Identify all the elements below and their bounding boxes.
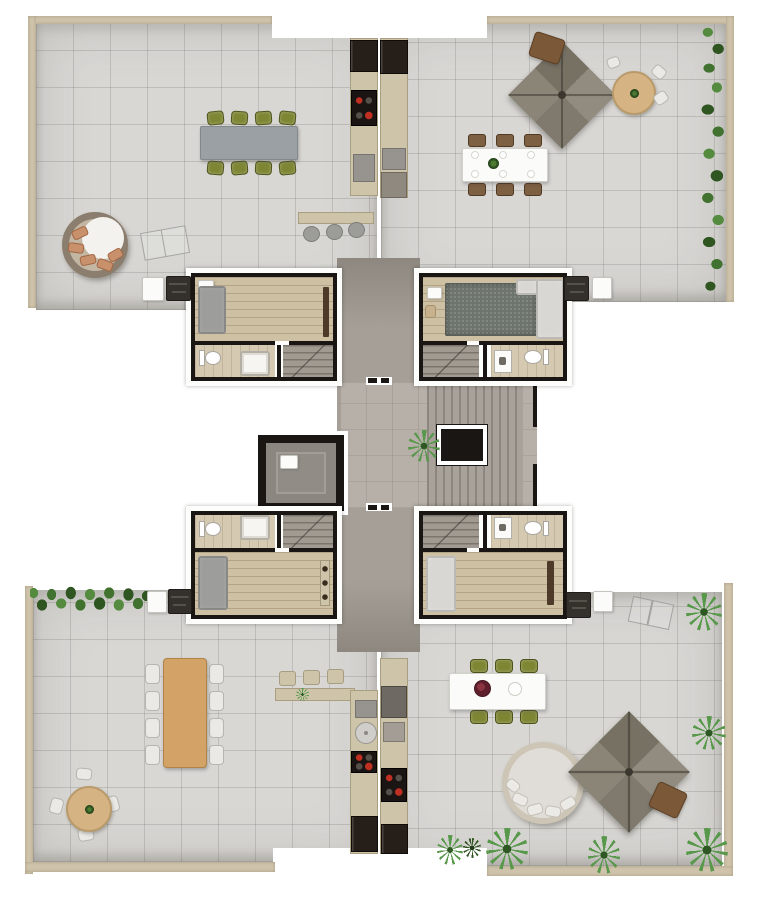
dining-chair bbox=[230, 160, 248, 175]
palm-plant bbox=[686, 593, 722, 631]
parapet-wall bbox=[25, 862, 275, 872]
dining-chair bbox=[206, 160, 224, 175]
dining-chair bbox=[145, 718, 160, 738]
parasol-pole bbox=[625, 768, 633, 776]
palm-plant bbox=[686, 828, 728, 872]
bbq-grill bbox=[168, 589, 192, 614]
room-walls bbox=[419, 511, 567, 619]
hedge bbox=[30, 584, 150, 614]
dining-table bbox=[200, 126, 298, 160]
dining-chair bbox=[496, 183, 514, 196]
bbq-grill bbox=[166, 276, 191, 301]
fridge bbox=[381, 824, 408, 854]
dining-chair bbox=[209, 718, 224, 738]
plate bbox=[499, 151, 507, 159]
bar-stool bbox=[326, 224, 343, 240]
dining-chair bbox=[470, 659, 488, 673]
centerpiece-plant bbox=[488, 158, 499, 169]
door-leaf bbox=[381, 378, 389, 383]
flower-centerpiece bbox=[474, 680, 491, 697]
pillow bbox=[67, 242, 84, 254]
potted-plant-icon bbox=[296, 688, 309, 701]
hedge bbox=[700, 24, 726, 300]
parapet-wall bbox=[28, 16, 36, 308]
chair bbox=[76, 767, 93, 780]
potted-plant-icon bbox=[408, 430, 440, 462]
door-leaf bbox=[368, 378, 377, 383]
dining-chair bbox=[255, 110, 273, 125]
dining-chair bbox=[209, 745, 224, 765]
dining-chair bbox=[209, 664, 224, 684]
dining-chair bbox=[145, 691, 160, 711]
plate bbox=[499, 170, 507, 178]
dining-chair bbox=[209, 691, 224, 711]
core-wall bbox=[533, 464, 537, 508]
cooktop bbox=[381, 768, 407, 802]
fridge bbox=[350, 40, 378, 72]
door-leaf bbox=[368, 505, 377, 510]
bar-stool bbox=[348, 222, 365, 238]
side-cabinet bbox=[593, 591, 613, 612]
bbq-grill bbox=[566, 592, 591, 618]
bar-counter bbox=[275, 688, 355, 701]
parapet-wall bbox=[487, 16, 734, 24]
dining-chair bbox=[145, 745, 160, 765]
parasol-pole bbox=[558, 91, 566, 99]
dining-chair bbox=[495, 659, 513, 673]
cabinet bbox=[383, 722, 405, 742]
dining-chair bbox=[145, 664, 160, 684]
dining-chair bbox=[231, 110, 249, 125]
elevator-panel bbox=[280, 455, 298, 469]
shaft-opening bbox=[441, 429, 483, 461]
parapet-wall bbox=[28, 16, 272, 24]
palm-plant bbox=[463, 838, 481, 858]
dining-chair bbox=[520, 659, 538, 673]
parapet-wall bbox=[726, 16, 734, 302]
palm-plant bbox=[437, 835, 463, 865]
plate bbox=[471, 151, 479, 159]
dining-chair bbox=[278, 160, 296, 176]
sink bbox=[382, 148, 406, 170]
table-plant bbox=[630, 89, 639, 98]
dining-table bbox=[449, 673, 546, 710]
fridge bbox=[380, 40, 408, 74]
dining-table bbox=[163, 658, 207, 768]
dining-chair bbox=[206, 110, 224, 126]
dining-chair bbox=[520, 710, 538, 724]
bowl bbox=[508, 682, 522, 696]
palm-plant bbox=[588, 836, 620, 874]
room-walls bbox=[191, 273, 337, 381]
parapet-wall bbox=[25, 586, 33, 874]
room-walls bbox=[191, 511, 337, 619]
bar-counter bbox=[298, 212, 374, 224]
plate bbox=[527, 170, 535, 178]
dining-chair bbox=[468, 134, 486, 147]
bar-stool bbox=[327, 669, 344, 684]
plate bbox=[471, 170, 479, 178]
dining-chair bbox=[470, 710, 488, 724]
appliance bbox=[381, 686, 407, 718]
palm-plant bbox=[692, 716, 726, 750]
side-cabinet bbox=[592, 277, 612, 299]
plate bbox=[527, 151, 535, 159]
sink-cabinet bbox=[355, 700, 377, 718]
core-wall bbox=[533, 383, 537, 427]
bbq-grill bbox=[564, 276, 589, 301]
sink bbox=[353, 154, 375, 182]
cooktop bbox=[351, 90, 377, 126]
palm-plant bbox=[486, 828, 528, 870]
dining-chair bbox=[278, 110, 296, 126]
dining-chair bbox=[495, 710, 513, 724]
table-plant bbox=[85, 805, 94, 814]
floor-plan bbox=[0, 0, 758, 900]
cooktop bbox=[351, 751, 377, 773]
round-sink bbox=[355, 722, 377, 744]
dining-chair bbox=[524, 134, 542, 147]
bar-stool bbox=[303, 226, 320, 242]
cabinet bbox=[381, 172, 407, 198]
dining-chair bbox=[496, 134, 514, 147]
fridge bbox=[351, 816, 378, 852]
door-leaf bbox=[381, 505, 389, 510]
side-cabinet bbox=[147, 591, 167, 613]
dining-chair bbox=[255, 161, 273, 176]
room-walls bbox=[419, 273, 567, 381]
terrace-lower-right-floor bbox=[381, 592, 722, 866]
bar-stool bbox=[279, 671, 296, 686]
dining-chair bbox=[524, 183, 542, 196]
side-cabinet bbox=[142, 277, 164, 301]
core-lightwell bbox=[274, 383, 337, 435]
dining-chair bbox=[468, 183, 486, 196]
bar-stool bbox=[303, 670, 320, 685]
